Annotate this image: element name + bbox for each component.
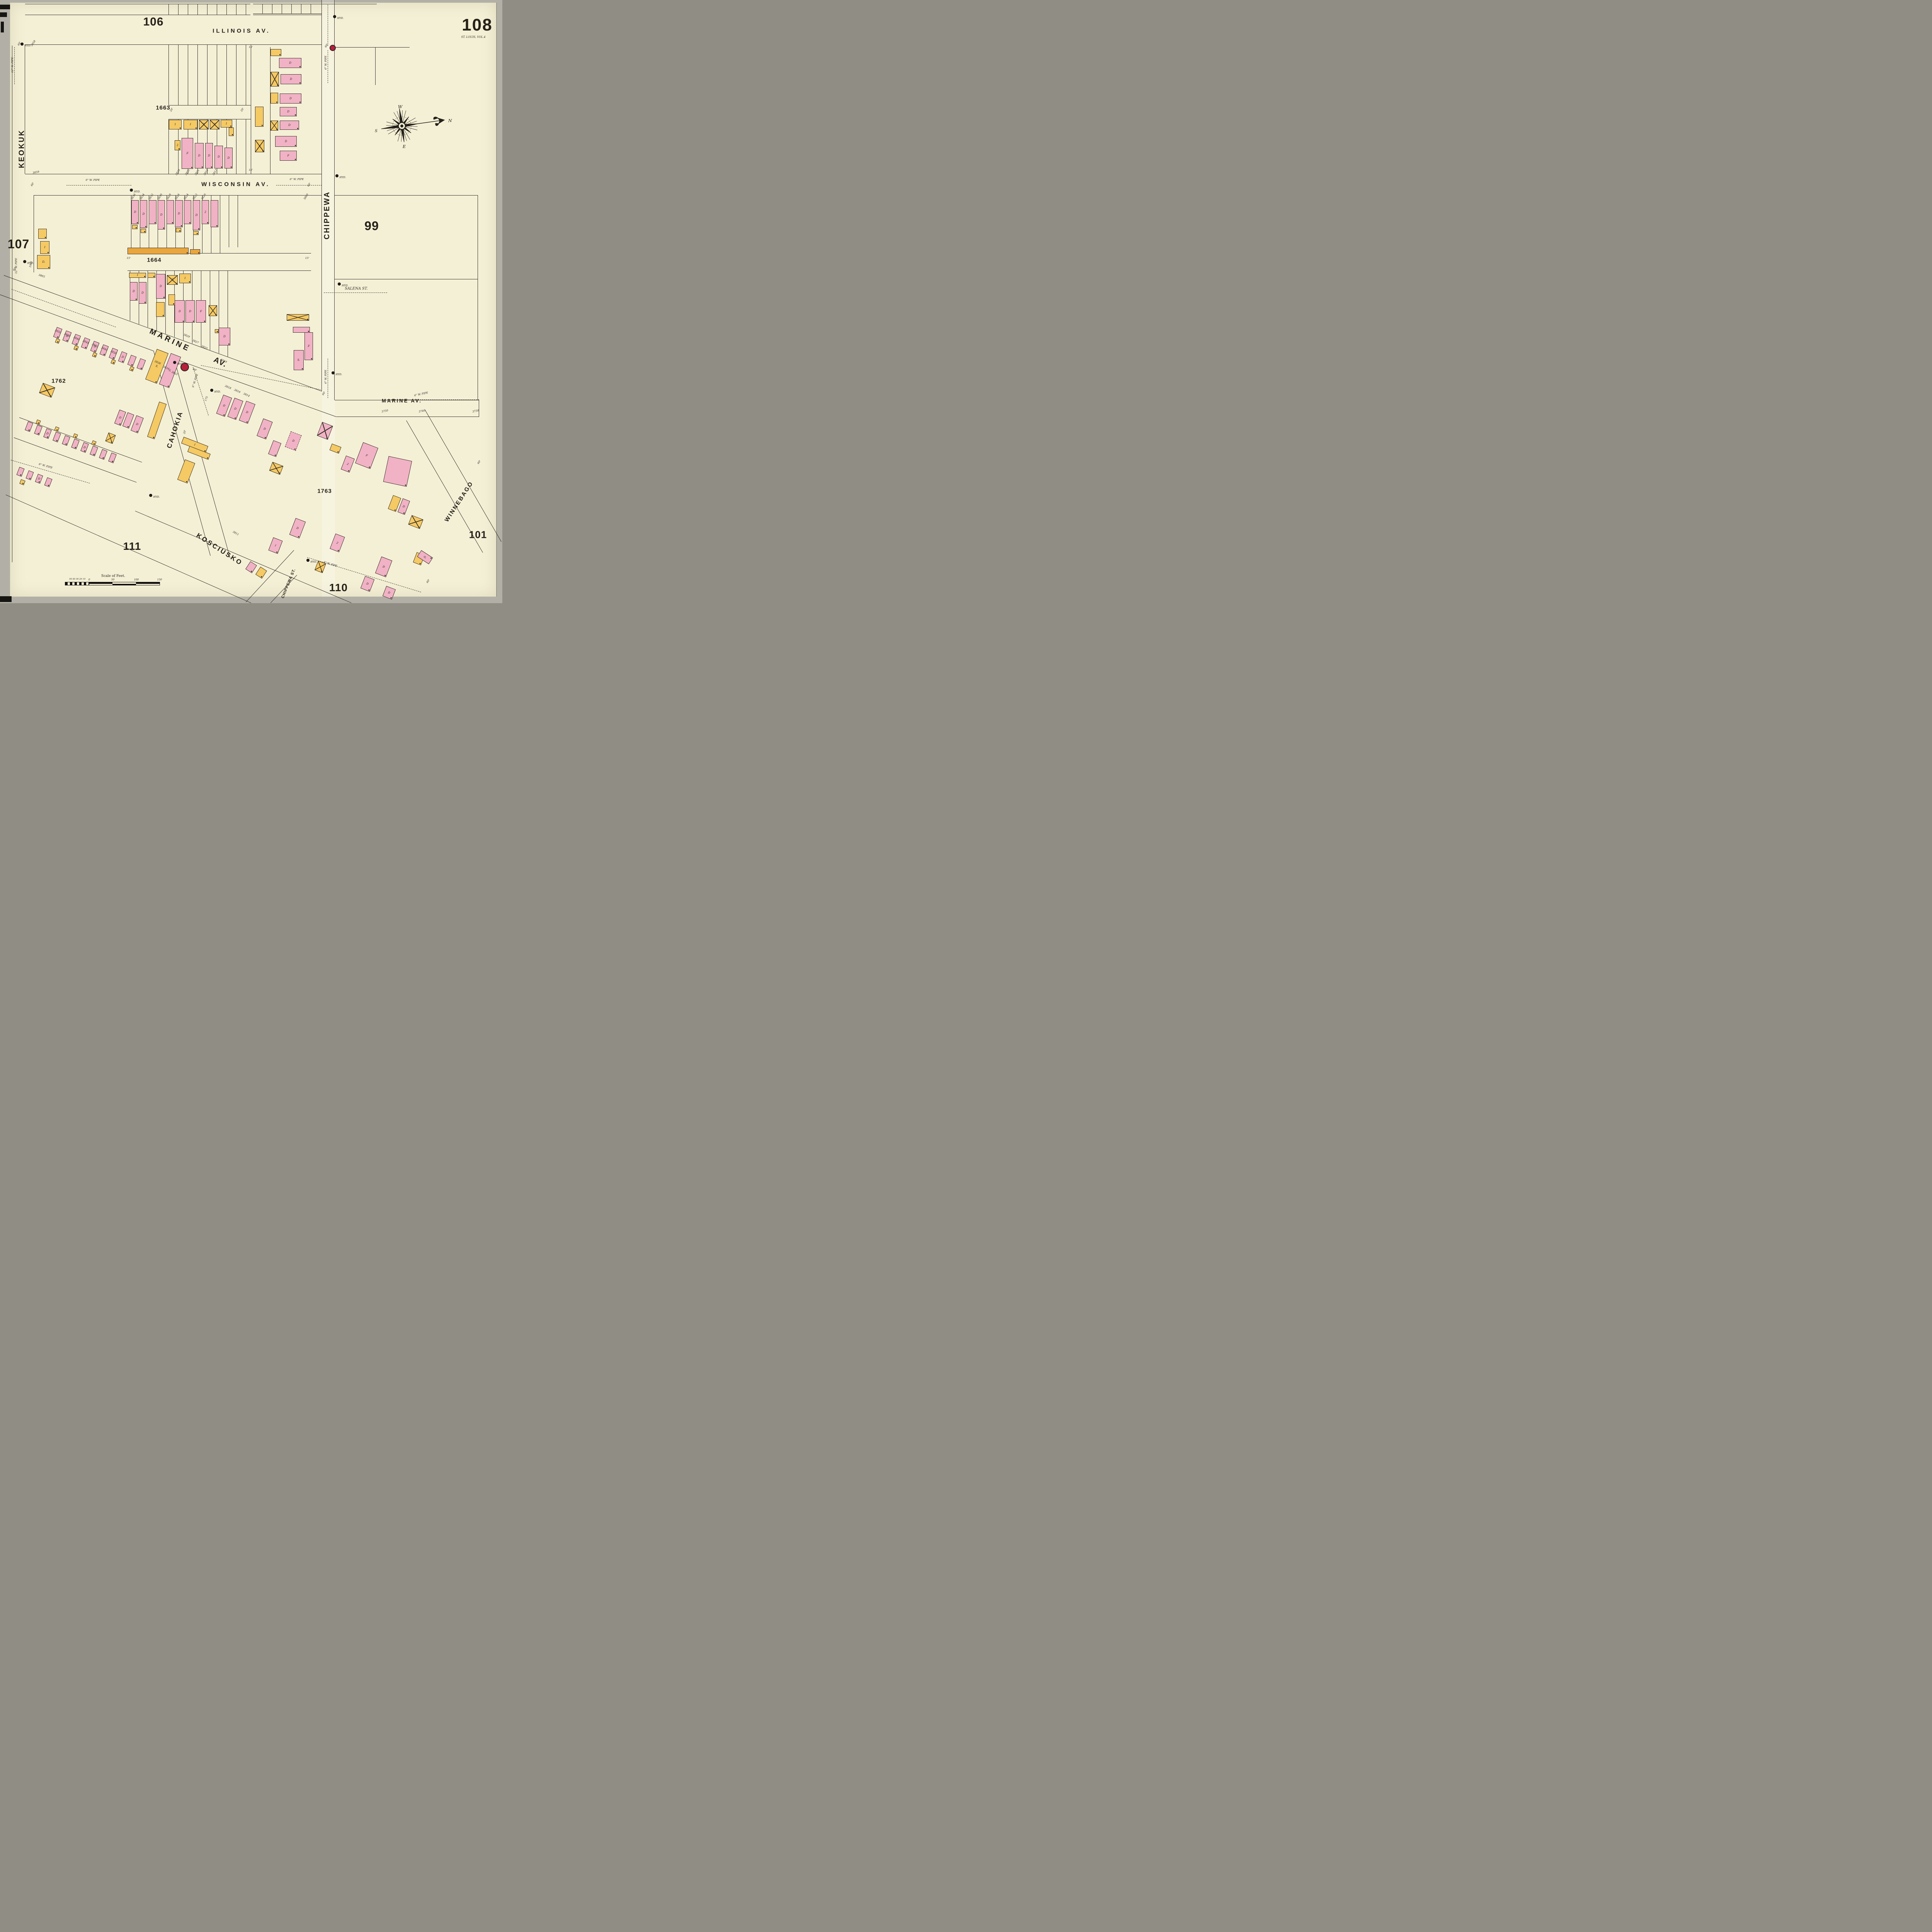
map-line	[217, 44, 217, 105]
scan-edge-mark	[0, 12, 7, 17]
volume-note: ST. LOUIS, VOL.4	[448, 36, 498, 39]
building-label: 1	[184, 277, 186, 280]
hydrant-dot	[210, 389, 213, 392]
building-label: D	[121, 355, 124, 359]
building: 2	[175, 140, 180, 150]
map-line	[25, 15, 250, 15]
building: 1	[221, 120, 232, 128]
building	[148, 273, 155, 278]
building	[287, 314, 309, 321]
hydrant-label: HYD.	[134, 190, 141, 193]
map-line	[169, 119, 251, 119]
building-label: 1	[274, 544, 277, 547]
building	[184, 200, 191, 224]
map-line	[236, 4, 236, 15]
building	[293, 327, 310, 333]
map-line	[238, 195, 238, 247]
building: 1	[40, 241, 49, 254]
building-label: S.	[155, 365, 159, 368]
building: 1	[184, 120, 197, 129]
building: 2	[167, 275, 178, 285]
building: D	[205, 143, 213, 168]
building-label: D	[119, 416, 122, 420]
scale-bar-rule	[65, 582, 160, 585]
building-label: D	[223, 404, 226, 408]
building: F	[280, 151, 297, 161]
building-label: F	[308, 345, 310, 348]
adjacent-sheet-number: 99	[364, 219, 379, 233]
scale-zero: 0	[88, 578, 90, 581]
building-label: D	[179, 310, 181, 313]
building: D	[280, 121, 299, 130]
compass-north-label: N	[448, 118, 452, 123]
building: D	[131, 200, 139, 224]
building-label: D	[263, 427, 266, 431]
compass-south-label: S	[375, 129, 378, 133]
map-line	[375, 47, 376, 85]
building-label: 2	[203, 123, 204, 126]
building: D	[224, 148, 233, 168]
annotation: 6" W. PIPE	[86, 179, 100, 182]
hydrant-label: HYD.	[153, 495, 160, 498]
building-label: D	[141, 292, 144, 294]
hydrant-dot	[149, 494, 152, 497]
street-label: WISCONSIN AV.	[201, 181, 270, 188]
building: D	[185, 300, 195, 323]
map-line	[236, 44, 236, 105]
building-label: D	[160, 214, 163, 216]
hydrant-label: HYD.	[342, 284, 349, 287]
building-label: 2	[177, 144, 178, 147]
building: D	[275, 136, 297, 147]
annotation: 15'	[305, 257, 310, 260]
annotation: 15'	[249, 168, 253, 172]
building-label: F	[200, 310, 202, 313]
map-line	[282, 4, 282, 14]
building	[132, 225, 138, 229]
adjacent-sheet-number: 106	[143, 15, 163, 29]
building-label: 1	[226, 122, 227, 125]
hydrant-label: HYD.	[340, 176, 346, 179]
building	[190, 249, 200, 254]
map-line	[207, 4, 207, 15]
building-label: S.	[298, 359, 300, 362]
map-line	[12, 46, 12, 562]
building-label: D	[287, 111, 289, 113]
map-line	[253, 14, 322, 14]
building-label: D	[189, 310, 191, 313]
building-label: D	[290, 78, 292, 81]
water-pipe-line	[14, 47, 15, 84]
building-label: D	[208, 155, 210, 157]
adjacent-sheet-number: 110	[329, 582, 348, 594]
building-label: D	[289, 62, 291, 65]
hydrant-label: HYD.	[337, 17, 344, 20]
building-label: D	[136, 423, 139, 426]
scale-100: 100	[134, 578, 139, 581]
building-label: 1	[190, 123, 191, 126]
map-line	[226, 4, 227, 15]
building-label: 1	[44, 246, 46, 249]
compass-rose: W E S N	[352, 104, 457, 150]
map-line	[335, 195, 478, 196]
building-label: D	[46, 432, 49, 435]
building: F	[196, 300, 206, 323]
building-label: 1	[174, 123, 176, 126]
map-line	[253, 4, 377, 4]
adjacent-sheet-number: 101	[469, 529, 487, 541]
block-number: 1663	[156, 105, 170, 111]
annotation: 6" W. PIPE	[324, 56, 327, 70]
map-line	[272, 4, 272, 14]
building-label: F	[187, 152, 189, 155]
map-line	[217, 4, 217, 15]
map-line	[301, 4, 301, 14]
building-label: F	[365, 454, 368, 457]
building	[149, 200, 156, 224]
hydrant-dot	[333, 15, 336, 18]
building-label: D	[382, 565, 385, 569]
annotation: SALENA ST.	[345, 287, 367, 291]
annotation: 15'	[127, 257, 131, 260]
building	[141, 229, 146, 233]
water-pipe-line	[324, 293, 387, 293]
scale-bar: Scale of Feet. 50 40 30 20 10 0 50 100 1…	[65, 574, 165, 585]
building-label: D	[296, 527, 299, 530]
map-line	[253, 15, 322, 15]
building	[229, 128, 234, 136]
adjacent-sheet-number: 111	[123, 540, 141, 553]
map-line	[246, 4, 246, 15]
map-line	[335, 47, 410, 48]
map-line	[165, 270, 166, 334]
annotation: 6" W. PIPE	[324, 370, 327, 384]
building	[209, 305, 217, 316]
street-label: KEOKUK	[18, 129, 26, 168]
hydrant-label: HYD.	[336, 373, 342, 376]
building-label: D	[134, 211, 136, 214]
building-label: D	[402, 505, 405, 509]
building: D	[214, 146, 223, 168]
scale-subdivisions: 50 40 30 20 10	[69, 578, 85, 580]
building-label: D	[223, 335, 226, 338]
building-label: F	[287, 155, 289, 157]
building-label: D	[196, 214, 198, 217]
building: D	[281, 74, 301, 84]
building-label: D	[366, 582, 369, 586]
building-label: 2	[347, 463, 349, 466]
building: 2	[210, 120, 219, 129]
building-label: D	[160, 285, 162, 288]
building	[167, 200, 174, 224]
scan-fold-band	[322, 0, 335, 597]
map-line	[334, 0, 335, 400]
block-number: 1664	[147, 257, 161, 264]
building: 2	[199, 120, 209, 129]
building-label: 1	[137, 274, 138, 277]
building: D	[156, 274, 165, 299]
building	[255, 107, 264, 127]
map-line	[335, 279, 478, 279]
building: D.	[37, 255, 50, 269]
building	[215, 329, 219, 333]
map-line	[169, 105, 251, 105]
map-line	[168, 44, 169, 105]
building-label: D	[198, 155, 201, 157]
building-label: 2	[172, 279, 173, 281]
building: D	[175, 300, 185, 323]
building-label: D	[178, 213, 180, 215]
water-pipe-line	[328, 359, 328, 398]
map-line	[128, 270, 311, 271]
building: D	[193, 200, 200, 230]
building: 2	[202, 200, 209, 224]
building: D	[130, 282, 138, 301]
building-label: 2	[336, 541, 339, 544]
building: D	[158, 200, 165, 230]
map-line	[336, 417, 479, 417]
scale-150: 150	[157, 578, 162, 581]
adjacent-sheet-number: 107	[8, 237, 29, 252]
hydrant-label: HYD.	[25, 44, 31, 47]
sanborn-map-sheet: 108 ST. LOUIS, VOL.4 W E S N	[0, 0, 502, 603]
building-label: D	[143, 213, 145, 216]
hydrant-dot	[173, 361, 176, 364]
map-line	[246, 44, 246, 105]
building-label: 1	[194, 443, 196, 446]
annotation: 15'	[249, 46, 253, 49]
building	[193, 231, 199, 235]
compass-east-label: E	[402, 144, 406, 149]
water-pipe-line	[276, 185, 322, 185]
map-line	[188, 44, 188, 105]
block-number: 1763	[317, 488, 332, 495]
annotation: 6" W. PIPE	[290, 178, 304, 181]
sheet-number: 108	[454, 15, 500, 35]
scale-50: 50	[111, 578, 114, 581]
hydrant-label: HYD.	[311, 560, 317, 563]
hydrant-dot	[338, 282, 341, 286]
building-label: D	[234, 407, 237, 411]
annotation: 12" W. PIPE	[15, 258, 18, 274]
building: D	[139, 282, 146, 304]
building: D	[195, 143, 204, 168]
building: 1	[169, 120, 182, 129]
building	[128, 248, 189, 254]
map-line	[246, 119, 246, 174]
map-line	[207, 44, 207, 105]
building	[270, 49, 281, 56]
building	[255, 140, 264, 152]
map-line	[262, 4, 263, 14]
map-line	[188, 4, 188, 15]
map-line	[321, 0, 322, 391]
scan-edge-mark	[1, 22, 4, 32]
map-line	[270, 47, 270, 174]
map-line	[197, 44, 198, 105]
hydrant-label: HYD.	[27, 262, 34, 265]
building	[270, 72, 279, 87]
building	[270, 121, 278, 131]
map-line	[148, 270, 148, 327]
map-line	[197, 4, 198, 15]
building	[176, 228, 181, 232]
street-label: MARINE AV.	[382, 398, 422, 404]
building-label: D	[246, 411, 249, 414]
compass-west-label: W	[398, 104, 403, 109]
hydrant-dot	[335, 174, 338, 177]
hydrant-dot	[332, 371, 335, 374]
building-label: D	[37, 477, 41, 481]
map-line	[291, 4, 292, 14]
hydrant-dot	[23, 260, 26, 263]
building: 1	[179, 274, 191, 283]
fire-alarm-marker	[330, 45, 336, 51]
building: D	[219, 328, 230, 345]
building-label: D	[228, 157, 230, 160]
building	[211, 200, 218, 227]
building-label: D	[388, 591, 391, 595]
building-label: D	[133, 290, 135, 293]
building-label: D	[83, 446, 86, 449]
building-label: D	[218, 156, 220, 158]
building: D	[279, 58, 301, 68]
map-line	[178, 44, 179, 105]
street-label: ILLINOIS AV.	[213, 28, 270, 34]
building-label: D.	[42, 261, 45, 264]
hydrant-dot	[306, 559, 310, 562]
map-line	[25, 44, 322, 45]
map-line	[220, 195, 220, 253]
building: D	[280, 94, 301, 104]
map-line	[34, 195, 34, 272]
map-line	[236, 119, 236, 174]
map-line	[229, 195, 229, 247]
building	[168, 294, 175, 305]
hydrant-dot	[130, 189, 133, 192]
water-pipe-line	[66, 185, 131, 185]
building	[38, 229, 47, 239]
hydrant-label: HYD.	[214, 390, 221, 393]
building-label: 2	[204, 211, 206, 214]
building: F	[182, 138, 193, 169]
map-line	[226, 44, 227, 105]
building: S.	[294, 350, 304, 370]
map-line	[168, 4, 169, 15]
building-label: 2	[214, 123, 215, 126]
building: D	[175, 200, 183, 227]
map-line	[479, 400, 479, 417]
building-label: D	[292, 439, 295, 443]
water-pipe-line	[328, 50, 328, 83]
scale-title: Scale of Feet.	[65, 574, 162, 578]
fire-alarm-marker	[180, 363, 189, 371]
street-label: CHIPPEWA	[323, 191, 332, 239]
map-line	[25, 174, 322, 174]
map-line	[178, 4, 179, 15]
map-line	[311, 4, 311, 14]
building-label: D	[288, 124, 291, 127]
map-paper	[10, 3, 497, 597]
building: D	[280, 107, 297, 116]
building: F	[304, 332, 313, 360]
hydrant-dot	[20, 43, 24, 46]
annotation: 12" W. PIPE	[11, 57, 14, 73]
map-line	[251, 44, 251, 174]
block-number: 1762	[51, 378, 66, 384]
building	[156, 302, 165, 317]
building-label: D	[423, 556, 427, 559]
scan-edge-mark	[0, 596, 12, 602]
map-line	[478, 195, 478, 400]
scan-edge-mark	[0, 5, 10, 9]
building-label: D	[285, 140, 287, 143]
water-pipe-line	[328, 5, 328, 46]
building: 1	[129, 273, 146, 278]
building	[270, 93, 278, 104]
building-label: D	[289, 97, 292, 100]
building: D	[140, 200, 147, 228]
